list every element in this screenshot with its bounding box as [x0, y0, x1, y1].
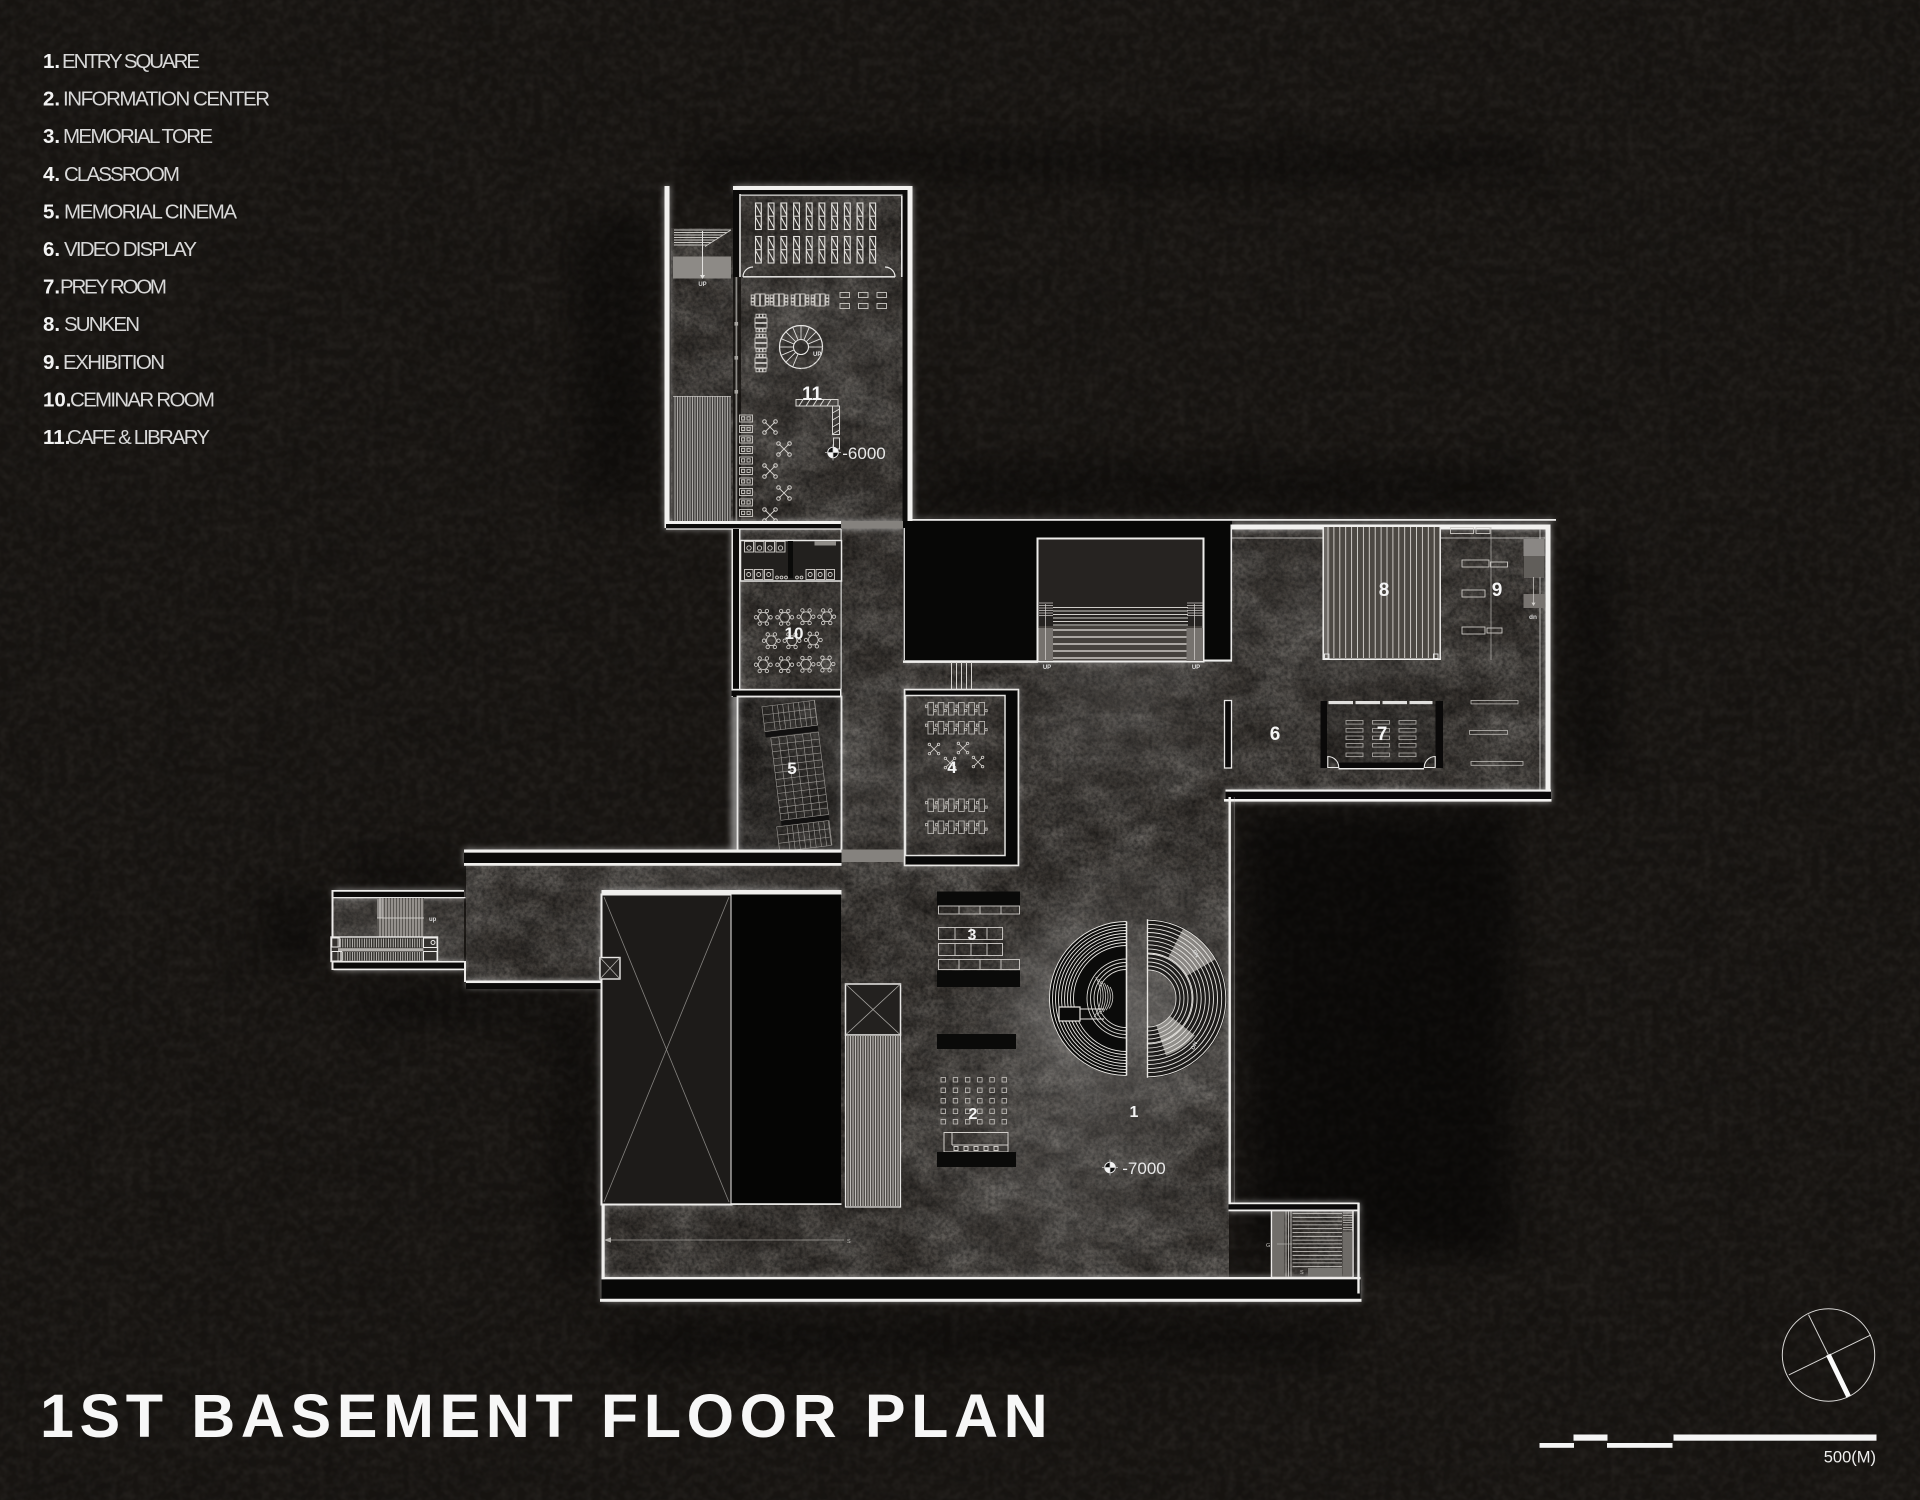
svg-text:6: 6 [1270, 724, 1281, 745]
svg-text:-6000: -6000 [842, 444, 885, 463]
svg-text:VIDEO DISPLAY: VIDEO DISPLAY [64, 238, 197, 261]
svg-text:-7000: -7000 [1122, 1159, 1165, 1178]
svg-text:UP: UP [698, 282, 706, 288]
svg-text:2.: 2. [43, 88, 60, 111]
svg-text:MEMORIAL TORE: MEMORIAL TORE [63, 125, 213, 148]
svg-text:UP: UP [813, 352, 821, 358]
svg-text:CLASSROOM: CLASSROOM [64, 163, 180, 186]
svg-text:G: G [1266, 1243, 1270, 1249]
svg-text:SUNKEN: SUNKEN [64, 313, 140, 336]
svg-text:5: 5 [787, 759, 796, 778]
svg-text:11: 11 [802, 384, 823, 405]
svg-text:INFORMATION CENTER: INFORMATION CENTER [63, 88, 270, 111]
svg-text:CEMINAR ROOM: CEMINAR ROOM [70, 388, 215, 411]
svg-text:9.: 9. [43, 351, 60, 374]
svg-text:1: 1 [1130, 1104, 1139, 1121]
svg-text:3.: 3. [43, 125, 60, 148]
svg-text:CAFE & LIBRARY: CAFE & LIBRARY [67, 426, 210, 449]
svg-text:EXHIBITION: EXHIBITION [63, 351, 165, 374]
svg-text:4.: 4. [43, 163, 60, 186]
svg-text:3: 3 [968, 927, 977, 944]
svg-text:PREY ROOM: PREY ROOM [60, 276, 167, 299]
svg-text:MEMORIAL CINEMA: MEMORIAL CINEMA [64, 200, 237, 223]
svg-text:9: 9 [1492, 580, 1503, 601]
svg-text:8.: 8. [43, 313, 60, 336]
svg-text:1.: 1. [43, 50, 60, 73]
svg-text:500(M): 500(M) [1824, 1449, 1876, 1467]
svg-text:5.: 5. [43, 200, 60, 223]
svg-text:up: up [429, 917, 437, 923]
svg-text:7: 7 [1377, 724, 1388, 745]
svg-text:8: 8 [1379, 580, 1390, 601]
svg-text:S: S [847, 1239, 851, 1245]
svg-text:10.: 10. [43, 388, 72, 411]
svg-text:2: 2 [969, 1106, 978, 1123]
svg-text:10: 10 [785, 624, 804, 643]
svg-text:7.: 7. [43, 276, 60, 299]
svg-text:S: S [1300, 1270, 1304, 1276]
svg-text:dn: dn [1529, 614, 1537, 621]
svg-text:6.: 6. [43, 238, 60, 261]
svg-text:UP: UP [1043, 665, 1051, 671]
svg-text:4: 4 [947, 758, 957, 777]
svg-text:ENTRY SQUARE: ENTRY SQUARE [62, 50, 200, 73]
svg-text:1ST BASEMENT FLOOR PLAN: 1ST BASEMENT FLOOR PLAN [40, 1382, 1053, 1450]
svg-text:UP: UP [1192, 665, 1200, 671]
